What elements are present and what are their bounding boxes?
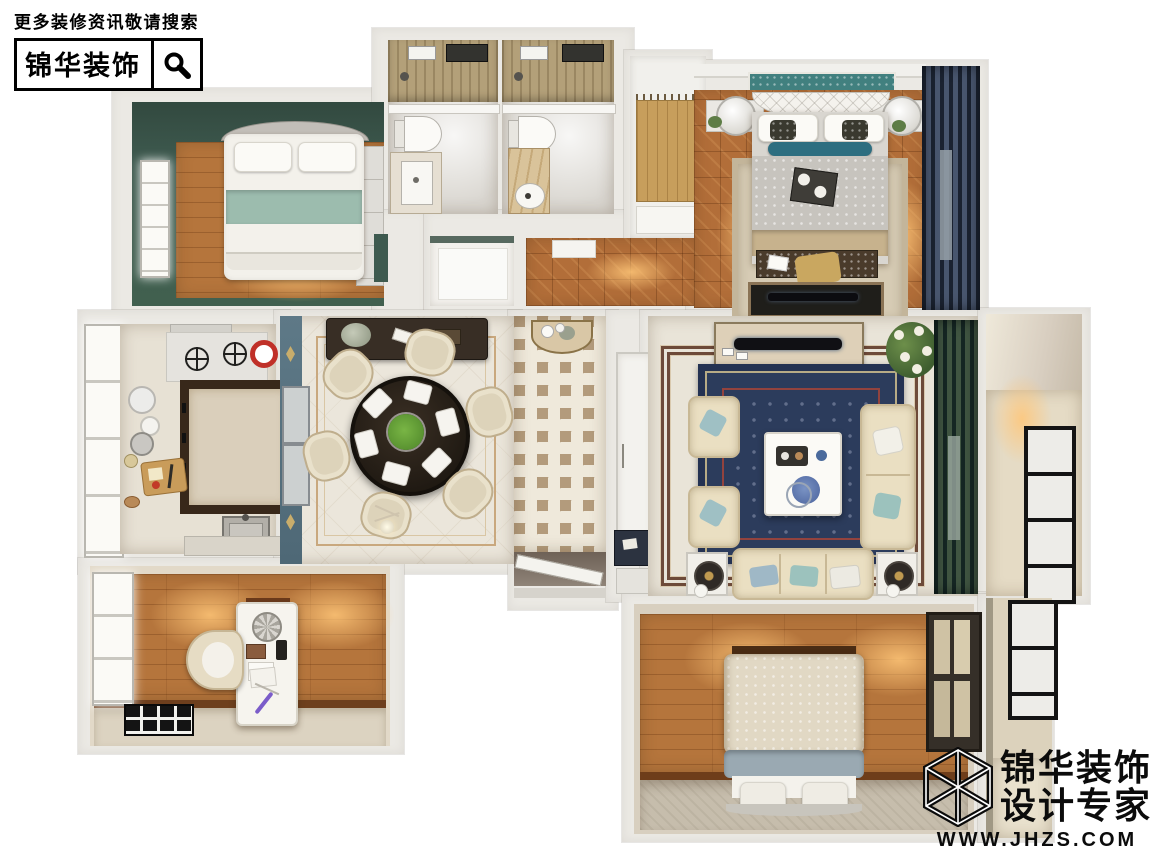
blue-pillow [749, 564, 780, 588]
snack-plate [124, 496, 140, 508]
faucet [242, 514, 249, 521]
teal-pillow [698, 408, 728, 438]
pot [130, 432, 154, 456]
chair-seat [202, 642, 234, 678]
purple-pen [254, 692, 273, 715]
cushion-divider [779, 554, 781, 594]
deer-figurine [372, 508, 402, 538]
teal-pillow [698, 498, 728, 528]
study [90, 566, 390, 746]
master-bed [752, 112, 888, 264]
window-sheer [948, 436, 960, 540]
bed [724, 646, 864, 816]
logo-subtitle: 设计专家 [1000, 787, 1152, 825]
armchair [688, 396, 740, 458]
armchair [688, 486, 740, 548]
paper [622, 538, 637, 550]
logo-text-block: 锦华装饰 设计专家 [1000, 749, 1152, 825]
desk-chair [186, 630, 244, 690]
damask-duvet [724, 654, 864, 754]
toilet-bowl [518, 116, 556, 152]
shower-head [446, 44, 488, 62]
logo-row: 锦华装饰 设计专家 [922, 747, 1152, 827]
plate-ring [786, 482, 812, 508]
floor-grille [124, 704, 194, 736]
three-seat-sofa [732, 548, 874, 600]
phone [276, 640, 287, 660]
figurine-light [380, 520, 394, 534]
east-balcony [986, 314, 1082, 596]
shower-wall [502, 40, 614, 102]
kitchen-window [84, 324, 124, 558]
desk [236, 602, 298, 726]
green-wall-corner [374, 234, 388, 282]
papers [249, 667, 277, 689]
wireframe-cube-icon [922, 747, 994, 827]
gold-diamond [286, 514, 295, 530]
serving-tray [776, 446, 808, 466]
light-fixture [520, 46, 548, 60]
tv-console [714, 322, 864, 368]
tv [768, 293, 858, 301]
coffee-table [764, 432, 842, 516]
breakfast-tray [790, 167, 838, 207]
blue-dish [816, 450, 827, 461]
brand-watermark: 锦华装饰 设计专家 WWW.JHZS.COM [922, 747, 1152, 852]
toilet [508, 116, 554, 150]
pantry-floor [438, 248, 508, 300]
tv-console [748, 282, 884, 318]
table-lamp [716, 96, 756, 136]
navy-curtains [922, 66, 980, 310]
bedroom-window [926, 612, 982, 752]
search-promo: 更多装修资讯敬请搜索 锦华装饰 [14, 8, 203, 91]
teal-wall-top [430, 236, 514, 243]
cushion-divider [825, 554, 827, 594]
hall-corridor [526, 238, 698, 306]
glass-shelf [502, 104, 616, 114]
window-sheer [940, 150, 952, 260]
teal-pillow [789, 565, 819, 587]
stove-burner [223, 342, 247, 366]
balcony-window-grid [1008, 600, 1058, 720]
sage-blanket [226, 190, 362, 224]
bed-foot [226, 252, 362, 270]
island-knob [182, 403, 186, 413]
study-window [92, 572, 134, 706]
master-bedroom [686, 60, 988, 322]
light-glow [586, 252, 676, 292]
brand-name: 锦华装饰 [17, 41, 151, 88]
door-threshold [514, 588, 606, 598]
lily-flower [900, 352, 910, 362]
decor-bowl [555, 323, 565, 333]
knife [168, 464, 174, 488]
lily-flower [894, 330, 904, 340]
vanity [508, 148, 550, 214]
tomato [151, 481, 160, 490]
red-pot [250, 340, 278, 368]
tv [734, 338, 842, 350]
accent-pillow-dark [770, 120, 796, 140]
dining-room [280, 316, 514, 564]
plate [797, 173, 811, 187]
window-pane [934, 681, 950, 737]
white-pillow [872, 425, 905, 456]
cutting-board [140, 457, 188, 496]
island-knob [182, 433, 186, 443]
living-room [648, 316, 978, 596]
shower-wall [388, 40, 498, 102]
lower-counter [184, 536, 282, 556]
valve-knob [514, 72, 523, 81]
remote [722, 348, 734, 356]
gold-diamond [286, 346, 295, 362]
search-tagline: 更多装修资讯敬请搜索 [14, 8, 203, 33]
glass-shelf [388, 104, 500, 114]
teal-pillow [872, 492, 902, 520]
bathroom-1 [388, 40, 498, 214]
plate [814, 185, 828, 199]
plant-small [708, 116, 722, 128]
pantry [430, 236, 514, 306]
pillow [234, 142, 292, 172]
cheese [148, 467, 163, 481]
lily-flower [914, 326, 924, 336]
magazine [767, 255, 789, 272]
shower-head [562, 44, 604, 62]
plant-small [892, 120, 906, 132]
cushion-divider [866, 474, 910, 476]
toilet-bowl [404, 116, 442, 152]
sink [401, 161, 433, 205]
logo-website: WWW.JHZS.COM [922, 829, 1152, 852]
floorplan-render: 更多装修资讯敬请搜索 锦华装饰 [0, 0, 1158, 868]
white-pillow [829, 564, 861, 589]
cup [781, 452, 789, 460]
decor-ball [694, 584, 708, 598]
stove-burner [185, 347, 209, 371]
round-fan-dish [252, 612, 282, 642]
blue-panel-wall [280, 316, 302, 564]
decor-bowl [541, 325, 554, 338]
toilet [394, 116, 440, 150]
light-fixture [408, 46, 436, 60]
shoe-cabinet [552, 240, 596, 258]
lily-flower [912, 364, 922, 374]
window [140, 160, 170, 278]
lily-flower [922, 346, 932, 356]
entry-foyer [514, 316, 606, 598]
window-pane [954, 620, 970, 674]
green-bedroom [132, 102, 384, 306]
step-stone [616, 568, 652, 594]
kitchen [84, 324, 276, 554]
faucet [525, 193, 531, 199]
search-icon [163, 51, 191, 79]
remote [736, 352, 748, 360]
flower-arrangement [341, 323, 371, 347]
decor-ball [886, 584, 900, 598]
lily-plant [886, 322, 938, 378]
valve-knob [400, 72, 409, 81]
gray-blue-blanket [724, 750, 864, 778]
loveseat [860, 404, 916, 550]
balcony-window-grid [1024, 426, 1076, 604]
faucet [413, 177, 419, 183]
search-icon-cell [151, 41, 200, 88]
door-handle [622, 444, 624, 468]
kitchen-island [180, 380, 296, 514]
window-pane [934, 620, 950, 674]
search-box: 锦华装饰 [14, 38, 203, 91]
bed-skirt [726, 804, 862, 816]
teal-curtains [934, 320, 978, 594]
logo-brand: 锦华装饰 [1000, 749, 1152, 787]
plate-stack [128, 386, 156, 414]
jar [124, 454, 138, 468]
mirror-cabinet [282, 386, 310, 444]
accent-pillow-dark [842, 120, 868, 140]
vanity [390, 152, 442, 214]
bed [224, 124, 364, 280]
centerpiece-plant [388, 414, 424, 450]
cup [795, 452, 803, 460]
window-pane [954, 681, 970, 737]
teal-bolster [768, 142, 872, 156]
bathroom-2 [502, 40, 614, 214]
notebook [246, 644, 266, 659]
pillow [298, 142, 356, 172]
